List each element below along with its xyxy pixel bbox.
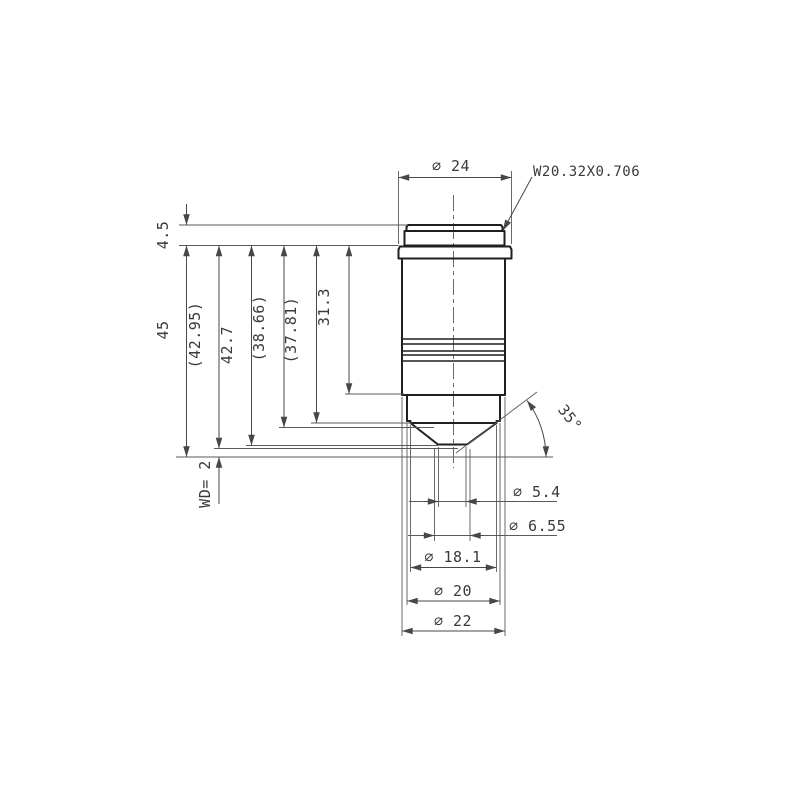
label-dia24: ∅ 24 <box>432 157 470 175</box>
label-38-66: (38.66) <box>250 295 268 362</box>
label-dia18-1: ∅ 18.1 <box>424 548 481 566</box>
label-37-81: (37.81) <box>282 297 300 364</box>
objective-lens-drawing: ∅ 24 W20.32X0.706 4.5 45 (42.95) 42.7 (3… <box>0 0 800 800</box>
label-dia5-4: ∅ 5.4 <box>513 483 561 501</box>
label-31-3: 31.3 <box>315 288 333 326</box>
thread-leader-line <box>503 177 532 231</box>
label-42-7: 42.7 <box>218 326 236 364</box>
label-42-95: (42.95) <box>186 302 204 369</box>
cone-angle-arc <box>527 401 546 458</box>
label-4-5: 4.5 <box>154 221 172 250</box>
objective-body-outline <box>399 225 512 445</box>
label-working-distance: WD= 2 <box>196 460 214 508</box>
dimension-labels: ∅ 24 W20.32X0.706 4.5 45 (42.95) 42.7 (3… <box>154 157 640 630</box>
label-cone-angle: 35° <box>554 401 586 435</box>
label-dia20: ∅ 20 <box>434 582 472 600</box>
label-dia22: ∅ 22 <box>434 612 472 630</box>
drawing-sheet: ∅ 24 W20.32X0.706 4.5 45 (42.95) 42.7 (3… <box>0 0 800 800</box>
label-dia6-55: ∅ 6.55 <box>509 517 566 535</box>
thread-cap <box>405 225 505 246</box>
label-45: 45 <box>154 320 172 339</box>
flange <box>399 246 512 259</box>
label-thread-spec: W20.32X0.706 <box>533 164 640 180</box>
